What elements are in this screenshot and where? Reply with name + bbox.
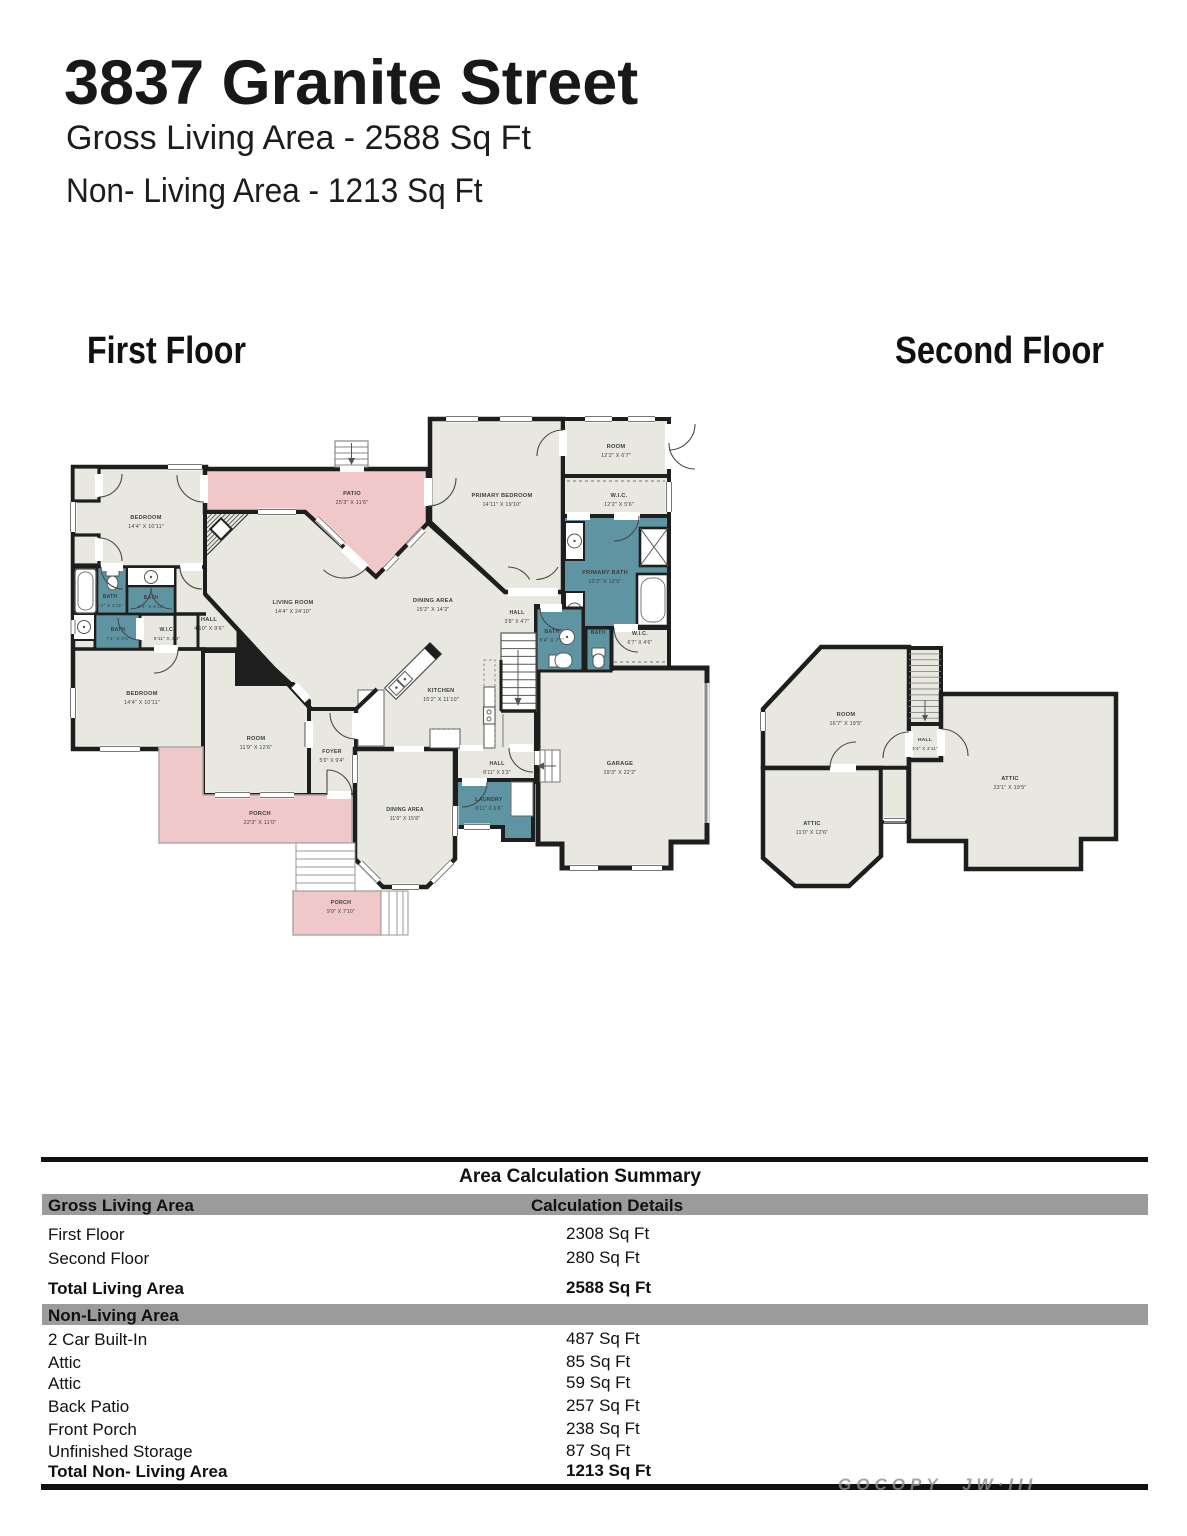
svg-text:14'4" X 10'11": 14'4" X 10'11" <box>128 524 164 530</box>
svg-text:W.I.C.: W.I.C. <box>611 493 628 499</box>
svg-text:11'0" X 12'6": 11'0" X 12'6" <box>796 830 829 836</box>
svg-text:19'3" X 22'2": 19'3" X 22'2" <box>603 770 636 776</box>
svg-text:BATH: BATH <box>103 594 118 600</box>
svg-text:23'1" X 19'5": 23'1" X 19'5" <box>993 785 1026 791</box>
svg-text:BATH: BATH <box>591 630 606 636</box>
svg-text:5'11" X 3'5": 5'11" X 3'5" <box>154 636 181 642</box>
svg-text:11'0" X 15'8": 11'0" X 15'8" <box>390 816 421 822</box>
svg-text:5'4" X 4'11": 5'4" X 4'11" <box>97 603 124 609</box>
svg-text:12'2" X 6'7": 12'2" X 6'7" <box>601 453 631 459</box>
svg-text:4'10" X 9'6": 4'10" X 9'6" <box>194 626 224 632</box>
svg-text:15'2" X 11'10": 15'2" X 11'10" <box>423 697 459 703</box>
svg-text:ROOM: ROOM <box>247 736 266 742</box>
svg-text:12'2" X 12'5": 12'2" X 12'5" <box>588 579 621 585</box>
svg-text:GARAGE: GARAGE <box>607 761 633 767</box>
svg-text:ATTIC: ATTIC <box>803 821 821 827</box>
svg-text:BATH: BATH <box>111 627 126 633</box>
svg-text:ROOM: ROOM <box>607 444 626 450</box>
svg-text:16'7" X 19'5": 16'7" X 19'5" <box>829 721 862 727</box>
svg-text:W.I.C.: W.I.C. <box>632 631 648 637</box>
svg-text:BATH: BATH <box>544 629 559 635</box>
svg-text:PATIO: PATIO <box>343 491 361 497</box>
svg-text:BATH: BATH <box>144 595 159 601</box>
svg-text:5'4" X 4'11": 5'4" X 4'11" <box>138 604 165 610</box>
svg-text:ROOM: ROOM <box>837 712 856 718</box>
svg-text:8'11" X 3'3": 8'11" X 3'3" <box>483 770 511 776</box>
svg-text:5'0" X 9'4": 5'0" X 9'4" <box>320 758 345 764</box>
svg-text:LIVING ROOM: LIVING ROOM <box>273 600 314 606</box>
svg-text:7'1" X 5'5": 7'1" X 5'5" <box>106 636 130 642</box>
svg-text:PORCH: PORCH <box>331 900 351 906</box>
svg-text:PRIMARY BATH: PRIMARY BATH <box>582 570 628 576</box>
svg-text:PORCH: PORCH <box>249 811 271 817</box>
svg-text:14'4" X 10'11": 14'4" X 10'11" <box>124 700 160 706</box>
svg-text:LAUNDRY: LAUNDRY <box>475 797 503 803</box>
svg-text:ATTIC: ATTIC <box>1001 776 1019 782</box>
svg-text:8'11" X 6'8": 8'11" X 6'8" <box>475 806 503 812</box>
svg-text:14'4" X 24'10": 14'4" X 24'10" <box>275 609 311 615</box>
svg-text:HALL: HALL <box>509 610 525 616</box>
svg-text:25'3" X 11'6": 25'3" X 11'6" <box>336 500 369 506</box>
svg-text:15'2" X 14'2": 15'2" X 14'2" <box>416 607 449 613</box>
svg-text:DINING AREA: DINING AREA <box>386 807 424 813</box>
svg-text:HALL: HALL <box>201 617 217 623</box>
svg-text:11'9" X 12'6": 11'9" X 12'6" <box>240 745 273 751</box>
svg-text:BEDROOM: BEDROOM <box>126 691 157 697</box>
svg-text:HALL: HALL <box>489 761 505 767</box>
svg-text:W.I.C.: W.I.C. <box>159 627 174 633</box>
svg-text:DINING AREA: DINING AREA <box>413 598 453 604</box>
svg-text:12'2" X 5'6": 12'2" X 5'6" <box>604 502 634 508</box>
svg-text:9'9" X 7'10": 9'9" X 7'10" <box>327 909 355 915</box>
svg-text:KITCHEN: KITCHEN <box>427 688 454 694</box>
svg-text:FOYER: FOYER <box>322 749 342 755</box>
svg-text:6'7" X 4'6": 6'7" X 4'6" <box>628 640 653 646</box>
svg-text:22'3" X 11'0": 22'3" X 11'0" <box>244 820 277 826</box>
svg-text:PRIMARY BEDROOM: PRIMARY BEDROOM <box>472 493 533 499</box>
svg-text:HALL: HALL <box>918 737 932 743</box>
svg-text:3'8" X 4'7": 3'8" X 4'7" <box>505 619 530 625</box>
svg-text:14'11" X 19'10": 14'11" X 19'10" <box>482 502 521 508</box>
svg-text:BEDROOM: BEDROOM <box>130 515 161 521</box>
svg-text:3'4" X 3'11": 3'4" X 3'11" <box>912 746 938 751</box>
svg-text:5'4" X 7'1": 5'4" X 7'1" <box>540 638 565 644</box>
